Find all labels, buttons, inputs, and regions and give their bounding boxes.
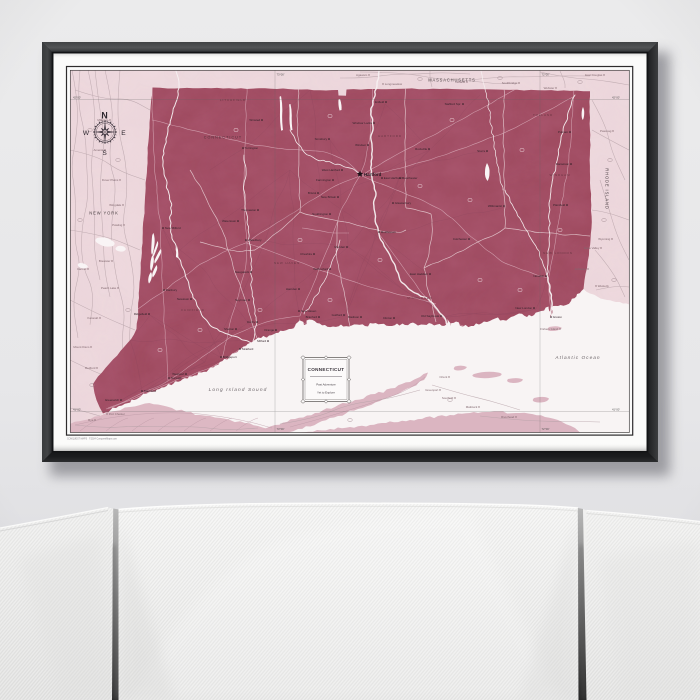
svg-text:Rye: Rye [88, 418, 94, 422]
svg-text:Meriden: Meriden [334, 245, 345, 249]
svg-text:NEW HAVEN: NEW HAVEN [274, 261, 300, 265]
svg-text:Naugatuck: Naugatuck [235, 270, 250, 274]
svg-text:Hope Valley: Hope Valley [584, 246, 600, 250]
svg-text:Plainfield: Plainfield [553, 203, 566, 207]
svg-text:New Britain: New Britain [321, 195, 337, 199]
svg-text:Groton: Groton [553, 315, 563, 319]
svg-text:Watertown: Watertown [222, 219, 237, 223]
svg-text:MASSACHUSETTS: MASSACHUSETTS [428, 78, 475, 83]
svg-text:Greenport: Greenport [425, 388, 438, 392]
svg-text:Peach Lake: Peach Lake [101, 286, 117, 290]
svg-text:Webster: Webster [544, 86, 555, 90]
svg-text:TOLLAND: TOLLAND [533, 113, 553, 117]
svg-text:Pawling: Pawling [112, 223, 123, 227]
svg-text:New London: New London [515, 306, 532, 310]
svg-text:72°00': 72°00' [542, 73, 550, 77]
svg-text:LITCHFIELD: LITCHFIELD [220, 98, 246, 102]
svg-text:Farmington: Farmington [316, 178, 332, 182]
svg-text:East Hartford: East Hartford [384, 176, 402, 180]
svg-text:East Haddam: East Haddam [410, 272, 429, 276]
svg-text:CONNECTICUT: CONNECTICUT [308, 367, 345, 372]
svg-text:Torrington: Torrington [245, 146, 259, 150]
svg-text:HARTFORD: HARTFORD [378, 134, 402, 138]
svg-text:WINDHAM: WINDHAM [550, 173, 571, 177]
svg-text:Bristol: Bristol [308, 191, 317, 195]
svg-text:Waterbury: Waterbury [248, 238, 262, 242]
svg-text:Manchester: Manchester [402, 176, 418, 180]
svg-text:Atlantic Ocean: Atlantic Ocean [554, 355, 600, 361]
svg-text:Yet to Explore: Yet to Explore [317, 391, 335, 395]
svg-text:72°00': 72°00' [542, 427, 550, 431]
svg-text:Stratford: Stratford [242, 347, 254, 351]
svg-text:Mattituck: Mattituck [466, 405, 478, 409]
svg-text:Thomaston: Thomaston [241, 208, 256, 212]
svg-text:Carmel: Carmel [77, 267, 87, 271]
svg-text:Milford: Milford [257, 339, 266, 343]
svg-text:Brewster: Brewster [99, 259, 110, 263]
svg-text:Port Chester: Port Chester [109, 412, 125, 416]
svg-text:Katonah: Katonah [88, 316, 99, 320]
svg-text:Clinton: Clinton [383, 316, 393, 320]
svg-text:FAIRFIELD: FAIRFIELD [181, 308, 204, 312]
svg-text:Riverhead: Riverhead [501, 415, 515, 419]
svg-text:MIDDLESEX: MIDDLESEX [407, 296, 432, 300]
svg-text:CONNECTICUT: CONNECTICUT [204, 136, 242, 140]
svg-text:CONQUEST MAPS ©2024 Conquest: CONQUEST MAPS ©2024 ConquestMaps.com [67, 438, 117, 441]
svg-text:Enfield: Enfield [375, 100, 385, 104]
svg-text:Derby: Derby [247, 320, 256, 324]
svg-text:42°00': 42°00' [73, 95, 81, 99]
svg-text:E: E [121, 130, 126, 137]
svg-text:Willimantic: Willimantic [488, 204, 503, 208]
svg-text:S: S [102, 150, 107, 157]
svg-text:Simsbury: Simsbury [315, 137, 328, 141]
svg-text:Madison: Madison [348, 315, 360, 319]
svg-text:Branford: Branford [306, 315, 318, 319]
svg-text:Windsor Locks: Windsor Locks [353, 121, 373, 125]
svg-text:Fishers Island: Fishers Island [540, 327, 558, 331]
svg-text:Danielson: Danielson [556, 162, 570, 166]
svg-text:Middletown: Middletown [381, 230, 397, 234]
svg-text:Bedford: Bedford [85, 366, 96, 370]
svg-text:NEW YORK: NEW YORK [89, 211, 118, 216]
svg-text:Cheshire: Cheshire [300, 252, 312, 256]
svg-text:East Douglas: East Douglas [585, 73, 603, 77]
svg-text:Holland: Holland [455, 80, 465, 84]
svg-text:Mount Kisco: Mount Kisco [73, 345, 89, 349]
svg-text:Ridgefield: Ridgefield [134, 312, 148, 316]
svg-text:Southington: Southington [312, 212, 328, 216]
svg-text:Storrs: Storrs [477, 149, 486, 153]
svg-text:Westerly: Westerly [598, 284, 610, 288]
svg-text:New Milford: New Milford [165, 226, 181, 230]
svg-text:41°00': 41°00' [612, 407, 620, 411]
svg-text:Stafford Spr.: Stafford Spr. [445, 102, 462, 106]
svg-text:41°00': 41°00' [73, 407, 81, 411]
svg-text:New Haven: New Haven [301, 309, 317, 313]
svg-text:42°00': 42°00' [612, 95, 620, 99]
svg-text:Putnam: Putnam [558, 130, 569, 134]
svg-text:Old Saybrook: Old Saybrook [421, 314, 440, 318]
svg-text:Shelton: Shelton [224, 327, 235, 331]
svg-text:Wingdale: Wingdale [109, 203, 121, 207]
svg-text:Longmeadow: Longmeadow [385, 82, 403, 86]
svg-text:Seymour: Seymour [235, 298, 247, 302]
svg-text:Orient: Orient [439, 375, 447, 379]
svg-text:Newtown: Newtown [177, 297, 190, 301]
svg-text:Danbury: Danbury [166, 288, 178, 292]
svg-text:Stamford: Stamford [144, 389, 157, 393]
svg-text:Rockville: Rockville [415, 147, 427, 151]
svg-text:Bridgeport: Bridgeport [223, 355, 237, 359]
svg-text:Westport: Westport [172, 372, 184, 376]
svg-text:Greenwich: Greenwich [105, 398, 120, 402]
svg-text:Dover Plains: Dover Plains [102, 178, 119, 182]
svg-text:Past Adventure: Past Adventure [316, 383, 336, 387]
svg-text:Norwalk: Norwalk [171, 376, 182, 380]
svg-text:Orange: Orange [264, 328, 274, 332]
svg-text:73°00': 73°00' [277, 427, 285, 431]
svg-text:Ashaway: Ashaway [575, 267, 587, 271]
svg-text:Wallingford: Wallingford [313, 267, 328, 271]
svg-text:Hartford: Hartford [364, 172, 382, 177]
svg-text:Wyoming: Wyoming [598, 237, 610, 241]
svg-text:Hamden: Hamden [286, 287, 298, 291]
svg-text:Glastonbury: Glastonbury [395, 201, 412, 205]
svg-text:N: N [101, 111, 107, 121]
svg-text:West Hartford: West Hartford [322, 168, 341, 172]
svg-text:RHODE ISLAND: RHODE ISLAND [605, 168, 610, 210]
svg-text:W: W [83, 130, 90, 137]
svg-text:Colchester: Colchester [453, 237, 467, 241]
svg-text:Guilford: Guilford [332, 313, 343, 317]
svg-text:Norwich: Norwich [533, 274, 544, 278]
svg-text:Winsted: Winsted [249, 118, 260, 122]
svg-text:Agawam: Agawam [356, 73, 368, 77]
svg-text:73°00': 73°00' [277, 73, 285, 77]
svg-text:Windsor: Windsor [355, 143, 366, 147]
svg-text:Pascoag: Pascoag [600, 129, 612, 133]
svg-text:Southbridge: Southbridge [502, 81, 518, 85]
svg-text:NEW LONDON: NEW LONDON [543, 251, 573, 255]
svg-text:Long Island Sound: Long Island Sound [209, 387, 268, 393]
